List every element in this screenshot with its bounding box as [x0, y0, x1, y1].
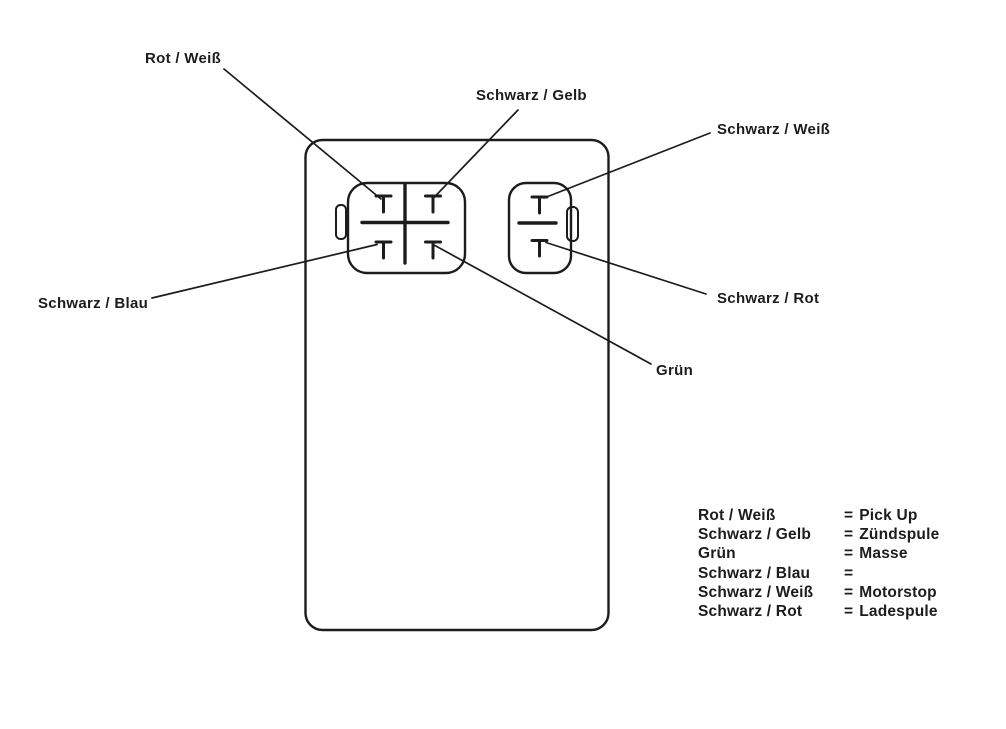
legend-wire-label: Schwarz / Blau [698, 564, 844, 583]
wire-label-schwarz-blau: Schwarz / Blau [38, 295, 148, 312]
legend-function-label: Pick Up [859, 506, 917, 525]
legend-wire-label: Schwarz / Gelb [698, 525, 844, 544]
wire-label-schwarz-weiss: Schwarz / Weiß [717, 121, 830, 138]
legend-equals-sign: = [844, 564, 853, 583]
pin-4pin-top-left [376, 196, 391, 212]
legend-function-label: Zündspule [859, 525, 939, 544]
legend-wire-label: Schwarz / Weiß [698, 583, 844, 602]
legend-row: Rot / Weiß = Pick Up [698, 506, 939, 525]
legend-function-label: Motorstop [859, 583, 937, 602]
leader-line-schwarz-blau [152, 245, 377, 299]
legend-row: Schwarz / Weiß = Motorstop [698, 583, 939, 602]
wire-label-rot-weiss: Rot / Weiß [145, 50, 221, 67]
wiring-diagram-page: Rot / Weiß Schwarz / Gelb Schwarz / Weiß… [0, 0, 1006, 729]
legend: Rot / Weiß = Pick Up Schwarz / Gelb = Zü… [698, 506, 939, 621]
connector-2pin-tab [567, 207, 578, 241]
legend-equals-sign: = [844, 602, 853, 621]
leader-line-gruen [434, 245, 651, 364]
legend-function-label: Masse [859, 544, 907, 563]
leader-line-rot-weiss [224, 69, 381, 199]
wire-label-schwarz-gelb: Schwarz / Gelb [476, 87, 587, 104]
wire-label-schwarz-rot: Schwarz / Rot [717, 290, 819, 307]
legend-equals-sign: = [844, 583, 853, 602]
legend-equals-sign: = [844, 525, 853, 544]
legend-row: Schwarz / Gelb = Zündspule [698, 525, 939, 544]
legend-row: Schwarz / Blau = [698, 564, 939, 583]
connector-4pin-tab [336, 205, 346, 239]
wire-label-gruen: Grün [656, 362, 693, 379]
legend-wire-label: Rot / Weiß [698, 506, 844, 525]
legend-wire-label: Schwarz / Rot [698, 602, 844, 621]
leader-line-schwarz-gelb [434, 110, 519, 198]
legend-wire-label: Grün [698, 544, 844, 563]
pin-4pin-bottom-left [376, 242, 391, 258]
cdi-body-outline [306, 140, 609, 630]
legend-row: Schwarz / Rot = Ladespule [698, 602, 939, 621]
pin-2pin-top [532, 197, 547, 213]
leader-line-schwarz-rot [546, 243, 706, 295]
legend-equals-sign: = [844, 544, 853, 563]
legend-row: Grün = Masse [698, 544, 939, 563]
legend-function-label: Ladespule [859, 602, 937, 621]
leader-line-schwarz-weiss [544, 133, 710, 198]
pin-2pin-bottom [532, 241, 547, 257]
legend-equals-sign: = [844, 506, 853, 525]
pin-4pin-bottom-right [426, 242, 441, 258]
